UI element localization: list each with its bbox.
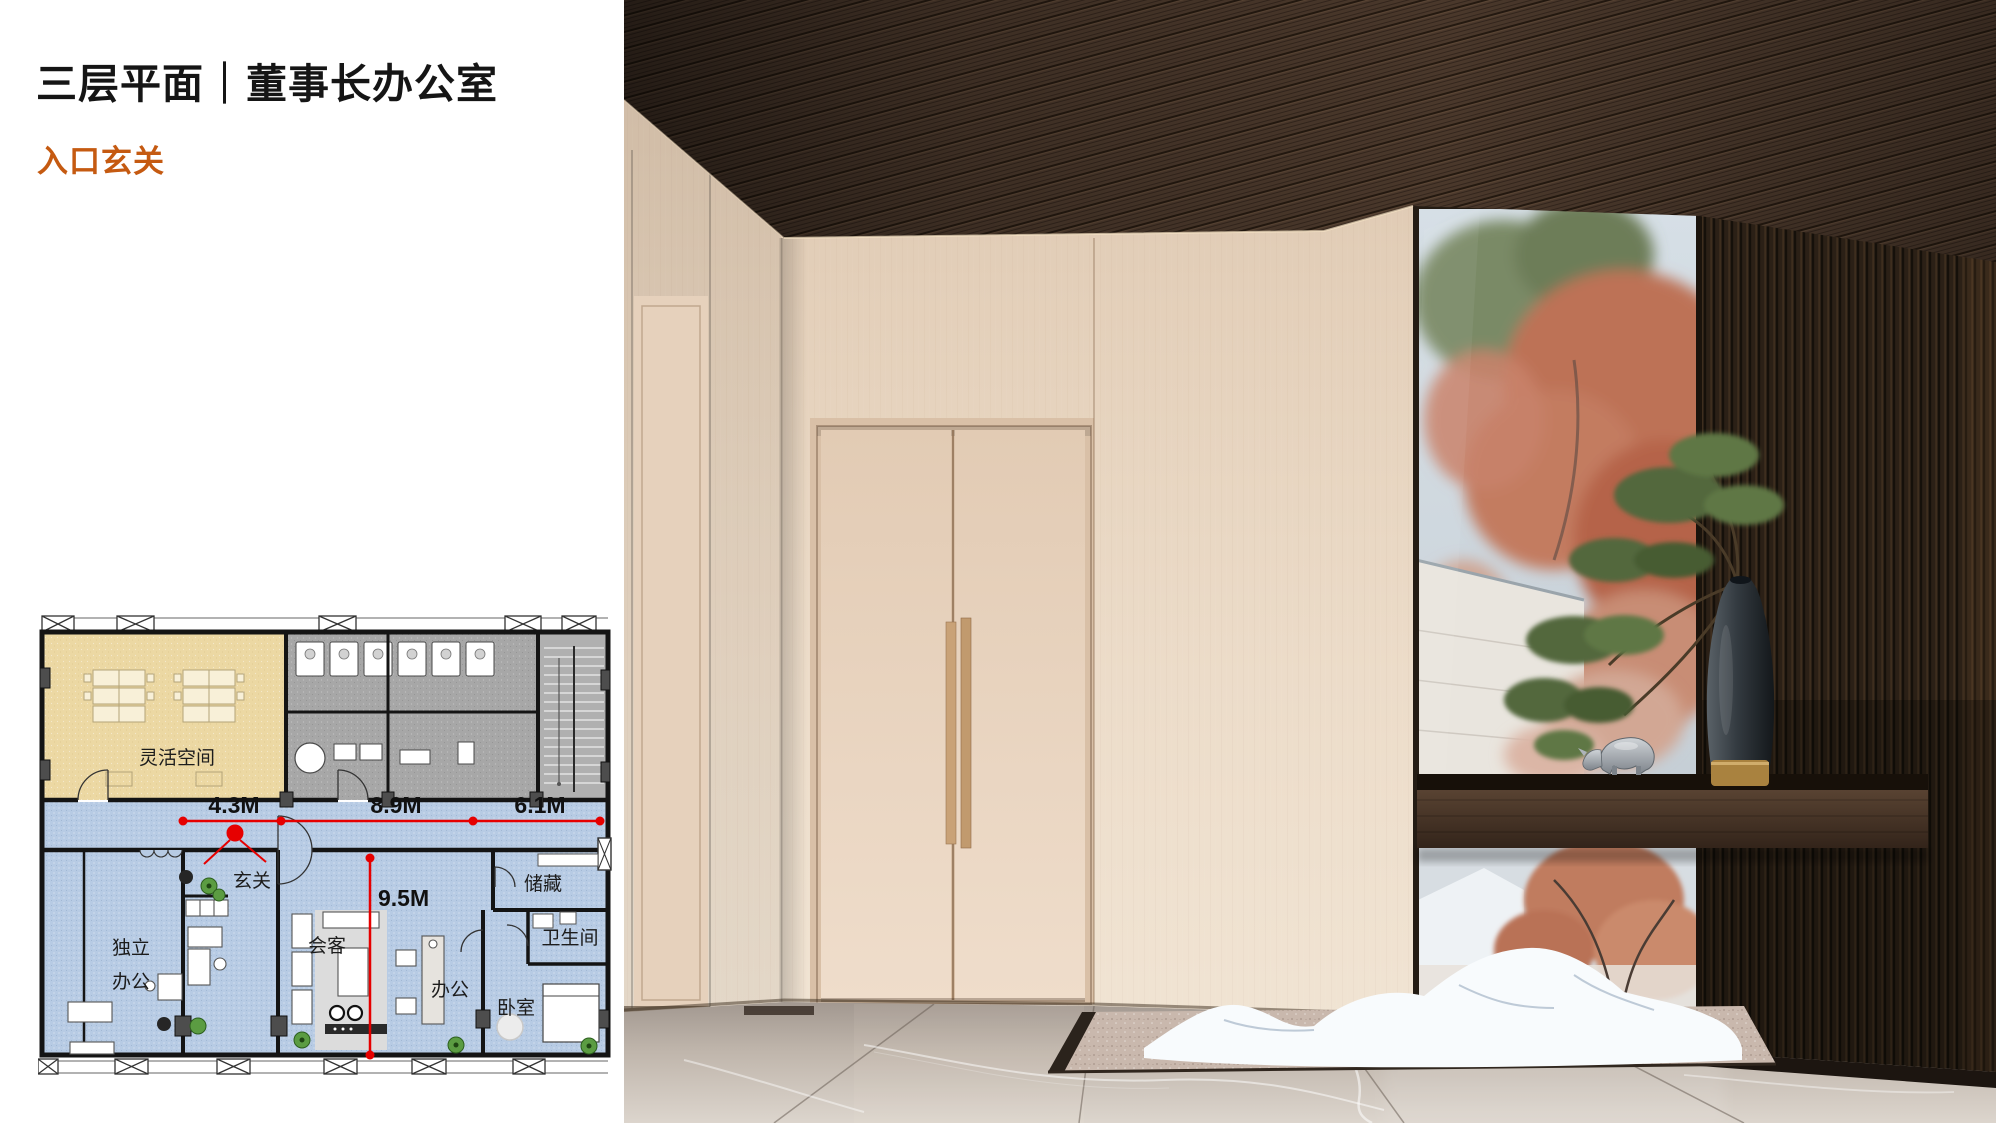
room-label-bathroom: 卫生间 [541,927,598,949]
left-recessed-door [634,296,708,1008]
flex-space-room [44,634,286,800]
accordion-partition [140,850,182,857]
room-label-meeting: 会客 [308,935,346,957]
dimension-width-left: 4.3M [208,792,259,818]
section-subtitle: 入口玄关 [37,136,165,181]
door-leaf-left [821,430,951,1000]
corridor-end-door [598,838,611,870]
room-label-private-office-1: 独立 [112,937,150,959]
entry-foyer-photo [624,0,1996,1123]
wood-ceiling [624,0,1996,262]
room-label-bedroom: 卧室 [497,997,535,1019]
dimension-depth: 9.5M [378,885,429,911]
room-label-storage: 储藏 [524,873,562,895]
door-handle-right [961,618,971,848]
room-label-private-office-2: 办公 [112,971,150,993]
dimension-width-right: 6.1M [514,792,565,818]
floor-plan: 灵活空间 玄关 独立 办公 会客 办公 卧室 卫生间 储藏 4.3M 8.9M [38,612,612,1078]
dimension-width-middle: 8.9M [370,792,421,818]
door-handle-left [946,622,956,844]
room-label-flex-space: 灵活空间 [139,747,215,769]
slide: 三层平面｜董事长办公室 入口玄关 [0,0,1996,1123]
page-title: 三层平面｜董事长办公室 [36,50,498,110]
door-leaf-right [955,430,1085,1000]
room-label-entry: 玄关 [233,870,271,892]
room-label-office: 办公 [431,979,469,1001]
double-door [810,418,1094,1004]
left-side-wall [624,100,781,1014]
floating-shelf [1417,774,1928,862]
